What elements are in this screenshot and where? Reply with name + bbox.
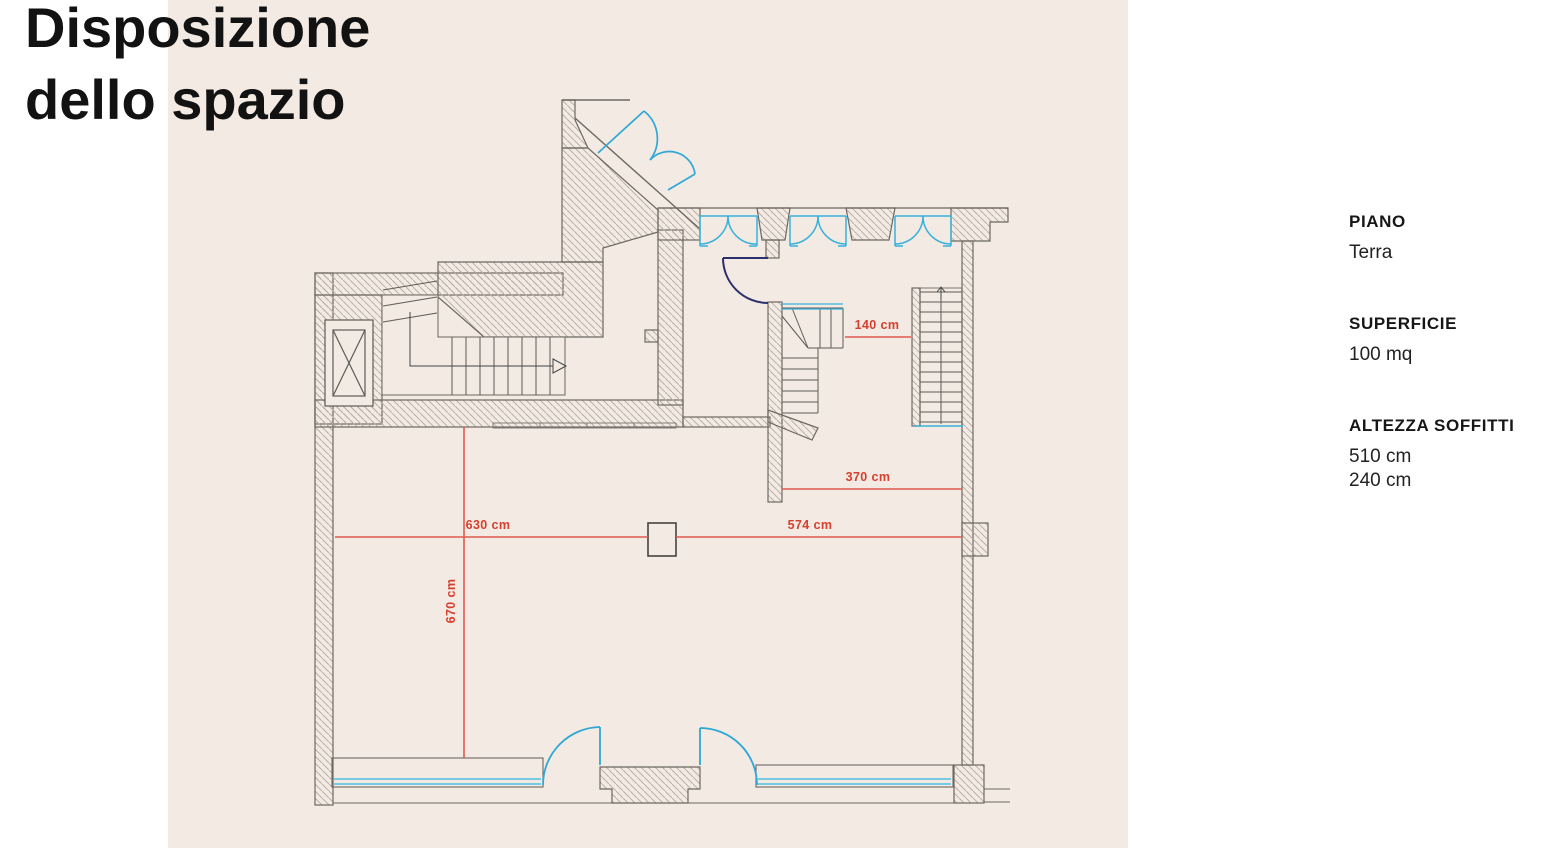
piano-value: Terra bbox=[1349, 241, 1559, 265]
info-panel: PIANO Terra SUPERFICIE 100 mq ALTEZZA SO… bbox=[1349, 212, 1559, 542]
floor-plan: 140 cm 370 cm 630 cm 574 cm 670 cm bbox=[0, 0, 1568, 848]
shop-door-left bbox=[543, 727, 600, 785]
interior-door-swing bbox=[723, 258, 768, 303]
wall-right-pillar bbox=[962, 523, 988, 556]
window-1 bbox=[700, 216, 757, 246]
wall-right bbox=[962, 241, 973, 765]
entrance-door-swing-2 bbox=[650, 151, 695, 174]
wall-lines bbox=[333, 100, 1010, 803]
dim-text-140: 140 cm bbox=[855, 318, 900, 332]
dim-text-670: 670 cm bbox=[444, 579, 458, 624]
entrance-door-leaf-2 bbox=[668, 174, 695, 190]
entrance-door-swing-1 bbox=[644, 111, 657, 160]
windows bbox=[700, 216, 951, 246]
piano-label: PIANO bbox=[1349, 212, 1559, 232]
winder-fan-2 bbox=[792, 308, 808, 348]
wall-vestibule-left-top bbox=[562, 100, 588, 148]
wall-pier-2 bbox=[846, 208, 895, 240]
altezza-value-1: 510 cm bbox=[1349, 445, 1559, 469]
walls-hatched bbox=[315, 100, 1008, 805]
altezza-value-2: 240 cm bbox=[1349, 469, 1559, 493]
dim-text-630: 630 cm bbox=[466, 518, 511, 532]
wall-pier-1 bbox=[757, 208, 790, 240]
wall-pier-stub bbox=[766, 240, 779, 258]
elevator bbox=[325, 320, 373, 406]
storefront-left-frame bbox=[332, 758, 543, 787]
winder-fan-1 bbox=[782, 316, 808, 348]
shop-door-right bbox=[700, 728, 757, 785]
winder-staircase bbox=[782, 304, 843, 413]
wall-bottom-pier-right bbox=[954, 765, 984, 803]
wall-corner-topright bbox=[951, 208, 1008, 241]
entrance-door-leaf bbox=[598, 111, 644, 153]
info-group-superficie: SUPERFICIE 100 mq bbox=[1349, 314, 1559, 367]
shop-door-right-swing bbox=[700, 728, 757, 785]
wall-smallroom-bottom bbox=[683, 417, 770, 427]
interior-door bbox=[723, 258, 768, 303]
dim-text-574: 574 cm bbox=[788, 518, 833, 532]
info-group-piano: PIANO Terra bbox=[1349, 212, 1559, 265]
wall-bottom-pier-center bbox=[600, 767, 700, 803]
wall-block bbox=[438, 262, 603, 337]
info-group-altezza: ALTEZZA SOFFITTI 510 cm 240 cm bbox=[1349, 416, 1559, 493]
window-3 bbox=[895, 216, 951, 246]
dim-text-370: 370 cm bbox=[846, 470, 891, 484]
window-2 bbox=[790, 216, 846, 246]
wall-corridor-right bbox=[658, 230, 683, 405]
shop-door-left-swing bbox=[543, 727, 600, 785]
wall-vestibule-triangle bbox=[562, 148, 658, 262]
column bbox=[648, 523, 676, 556]
wall-stair-strip bbox=[912, 288, 920, 426]
superficie-label: SUPERFICIE bbox=[1349, 314, 1559, 334]
altezza-label: ALTEZZA SOFFITTI bbox=[1349, 416, 1559, 436]
superficie-value: 100 mq bbox=[1349, 343, 1559, 367]
wall-winder-strip bbox=[768, 302, 782, 502]
wall-corridor-bump bbox=[645, 330, 658, 342]
